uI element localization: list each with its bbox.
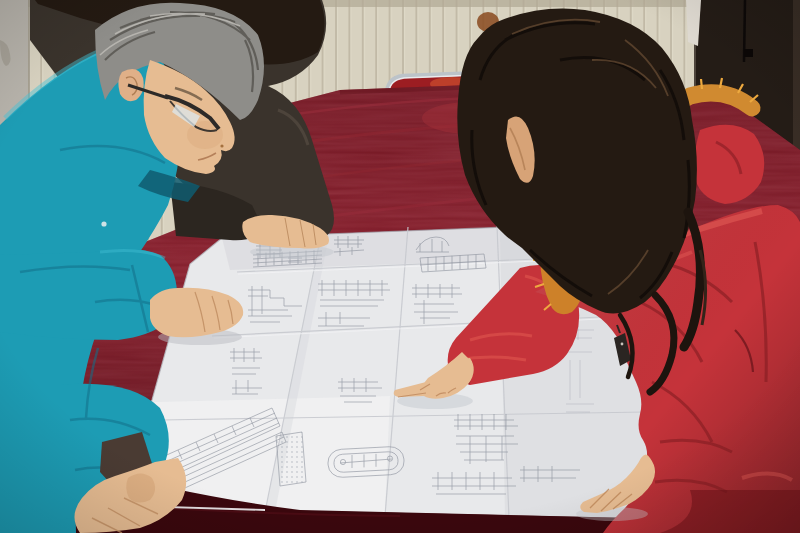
photo-blueprint-review bbox=[0, 0, 800, 533]
vignette-overlay bbox=[0, 0, 800, 533]
scene-svg bbox=[0, 0, 800, 533]
